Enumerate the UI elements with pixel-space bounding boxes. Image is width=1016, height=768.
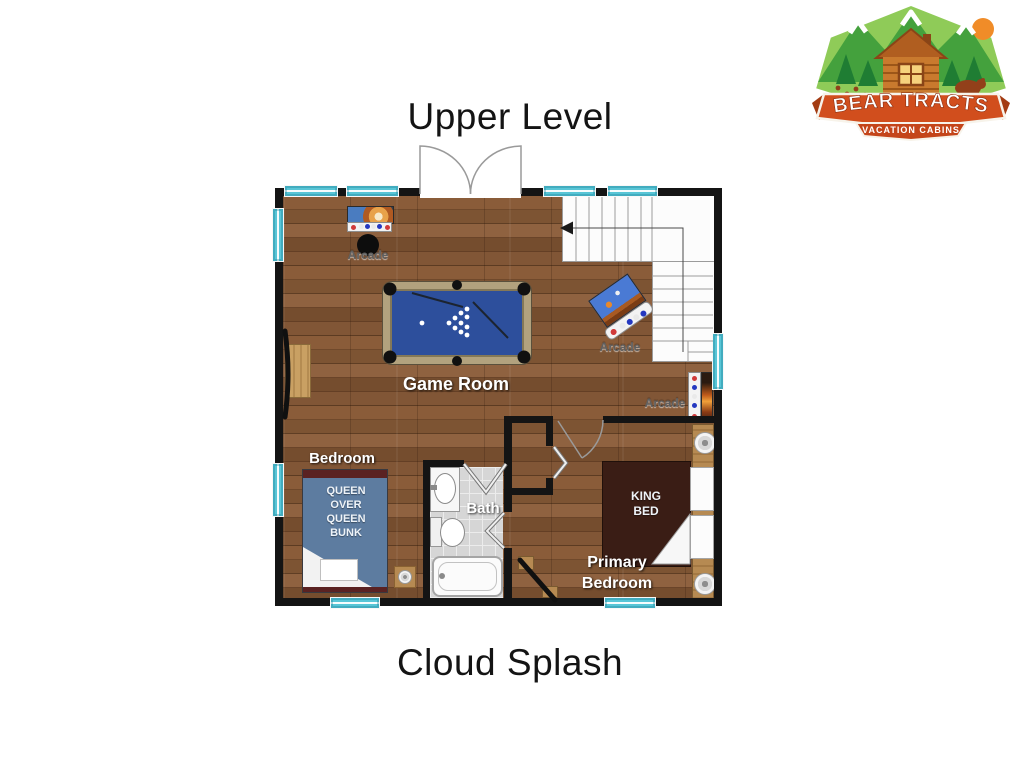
arcade-machine-control-panel (347, 222, 392, 232)
floor-vent (394, 566, 416, 588)
wall-bath-right-lower (504, 548, 512, 598)
arcade-buttons-icon (609, 328, 617, 336)
staircase-lower-run (652, 262, 714, 362)
lamp (694, 432, 716, 454)
bed-pillow (690, 467, 714, 511)
toilet-bowl (440, 518, 465, 547)
bed-label-bunk: QUEEN OVER QUEEN BUNK (326, 484, 365, 540)
logo-tagline-text: VACATION CABINS (862, 125, 960, 135)
arcade-buttons-icon (692, 376, 697, 381)
logo-tagline-ribbon: VACATION CABINS (856, 123, 966, 140)
window (543, 185, 596, 197)
window (607, 185, 658, 197)
wall-closet-stub-bottom (546, 478, 553, 495)
wall-bath-right-upper (504, 416, 512, 512)
room-label-bedroom: Bedroom (309, 449, 375, 468)
bed-pillow (320, 559, 358, 581)
sink (434, 473, 456, 504)
floor-plan-page: Upper Level Cloud Splash (0, 0, 1016, 768)
furniture-label-arcade: Arcade (645, 396, 686, 410)
furniture-label-arcade: Arcade (600, 340, 641, 354)
bear-tracts-logo: BEAR TRACTS VACATION CABINS (810, 2, 1012, 142)
tub-faucet-icon (439, 573, 445, 579)
tv-console-table (285, 344, 311, 398)
room-label-primary-bedroom: Primary Bedroom (582, 552, 652, 594)
french-door-opening (420, 186, 521, 198)
room-label-game-room: Game Room (403, 375, 509, 394)
wall-bath-left (423, 460, 430, 598)
tv-corner-stand (518, 556, 534, 570)
lamp (694, 573, 716, 595)
window (712, 333, 724, 390)
arcade-buttons-icon (351, 225, 356, 230)
bed-label-king: KING BED (631, 489, 661, 519)
room-label-bath: Bath (466, 499, 499, 518)
window (604, 597, 656, 609)
wall-outer-right (714, 188, 722, 606)
bathtub-inner (438, 562, 497, 591)
wall-bath-top (423, 460, 464, 467)
tv-corner-stand (542, 586, 558, 598)
sink-faucet-icon (430, 485, 437, 490)
window (272, 208, 284, 262)
window (284, 185, 338, 197)
vent-grille-icon (398, 570, 412, 584)
wall-closet-stub-top (546, 416, 553, 446)
bathtub (432, 556, 503, 597)
cabin-name-title: Cloud Splash (2, 642, 1016, 684)
window (330, 597, 380, 609)
wall-primary-bedroom-top (603, 416, 714, 423)
window (346, 185, 399, 197)
bed-pillow (690, 515, 714, 559)
pool-table (383, 282, 531, 364)
staircase-upper-run (562, 196, 714, 262)
window (272, 463, 284, 517)
furniture-label-arcade: Arcade (348, 248, 389, 262)
